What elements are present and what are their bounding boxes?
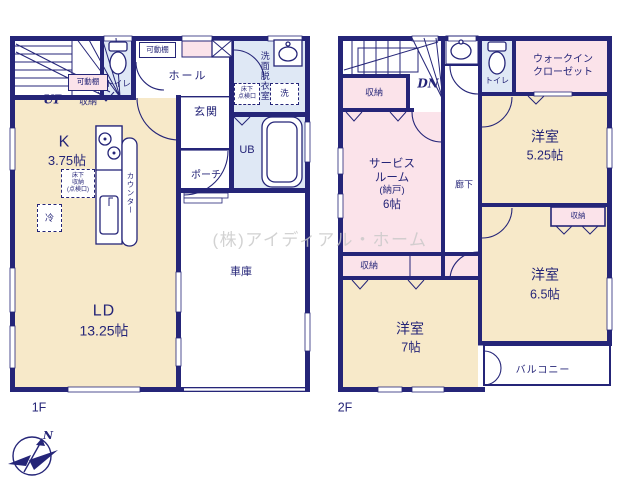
service-room-line4: 6帖	[383, 199, 401, 211]
watermark-text: (株)アイディアル・ホーム	[212, 226, 427, 251]
service-room-line1: サービス	[369, 158, 415, 170]
washer-label: 洗	[270, 83, 299, 105]
underfloor-hatch-label: 床下 点検口	[234, 83, 260, 105]
movable-shelf-hall-label: 可動棚	[139, 42, 176, 58]
underfloor-storage-line1: 床下	[72, 173, 84, 180]
bathtub-icon	[262, 117, 302, 187]
washer-text: 洗	[280, 89, 289, 99]
kitchen-island-icon	[96, 126, 122, 244]
storage-label-1f: 収納	[79, 97, 97, 106]
toilet-icon-1f	[109, 42, 127, 74]
garage-label: 車庫	[230, 267, 252, 279]
room-b-size-label: 6.5帖	[530, 288, 560, 301]
underfloor-storage-line3: (点検口)	[67, 187, 89, 194]
fridge-text: 冷	[45, 213, 54, 223]
floor2-label: 2F	[338, 401, 353, 414]
room-a-label: 洋室	[531, 130, 559, 145]
wic-label-line2: クローゼット	[533, 68, 593, 79]
balcony-label: バルコニー	[516, 366, 571, 377]
stairs-down-label: DN	[417, 78, 438, 91]
underfloor-hatch-line1: 床下	[241, 87, 253, 94]
room-c-size-label: 7帖	[401, 341, 420, 354]
wic-label-line1: ウォークイン	[533, 55, 593, 66]
floor1-label: 1F	[32, 401, 47, 414]
stairs-up-label: UP	[43, 94, 63, 107]
fridge-label: 冷	[37, 204, 62, 232]
toilet-icon-2f	[488, 42, 506, 74]
garage-door-opening	[184, 387, 305, 392]
counter-label: カウンター	[126, 172, 134, 215]
living-dining-size-label: 13.25帖	[79, 324, 128, 339]
storage-mid-label: 収納	[571, 212, 586, 220]
toilet-label-1f: トイレ	[105, 80, 131, 89]
compass-north-label: N	[43, 430, 53, 442]
service-room-line2: ルーム	[375, 172, 409, 184]
storage-top-label: 収納	[365, 88, 383, 97]
underfloor-storage-label: 床下 収納 (点検口)	[61, 169, 95, 198]
compass-icon	[8, 437, 58, 475]
living-dining-label: LD	[93, 304, 115, 321]
room-b-label: 洋室	[531, 268, 559, 283]
entrance-label: 玄関	[194, 107, 218, 119]
kitchen-size-label: 3.75帖	[48, 154, 86, 168]
washbasin-icon-1f	[274, 40, 302, 66]
hall-label: ホール	[169, 71, 208, 83]
washroom-label: 洗面脱衣室	[259, 51, 268, 101]
room-c-label: 洋室	[396, 322, 424, 337]
underfloor-hatch-line2: 点検口	[238, 94, 256, 101]
service-room-line3: (納戸)	[379, 186, 404, 196]
room-a-size-label: 5.25帖	[527, 149, 564, 162]
porch-label: ポーチ	[191, 171, 221, 182]
floorplan-canvas: UP 可動棚 収納 トイレ 可動棚 ホール 玄関 ポーチ 洗面脱衣室 床下 点検…	[0, 0, 640, 480]
corridor-label: 廊下	[455, 180, 473, 189]
kitchen-label: K	[59, 135, 70, 152]
unit-bath-label: UB	[239, 145, 254, 157]
underfloor-storage-line2: 収納	[72, 180, 84, 187]
movable-shelf-stairs-label: 可動棚	[68, 74, 108, 91]
shoe-box-icon	[182, 40, 232, 57]
storage-strip-label: 収納	[360, 261, 378, 270]
toilet-label-2f: トイレ	[485, 77, 509, 85]
